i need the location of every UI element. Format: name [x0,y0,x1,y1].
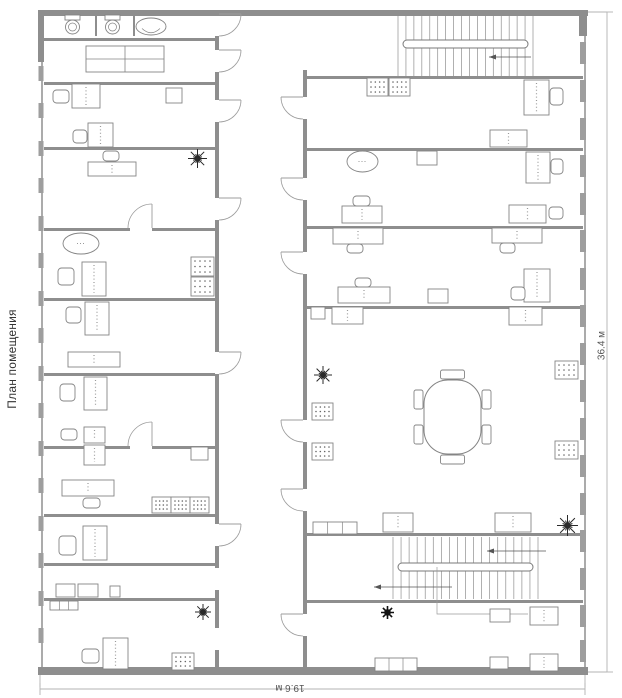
desk [490,130,527,147]
conference-chair [414,390,423,409]
door-swing [219,198,241,220]
armchair-dot [375,86,377,88]
armchair-dot [401,86,403,88]
armchair-dot [397,81,399,83]
armchair-dot [315,451,317,453]
armchair-dot [320,455,322,457]
armchair-dot [204,266,206,268]
wall [303,119,307,178]
window [580,80,586,102]
armchair-dot [379,86,381,88]
wall [215,36,219,50]
window [39,216,44,231]
armchair-dot [573,369,575,371]
conference-chair [482,425,491,444]
door [128,204,152,228]
window [580,343,586,365]
armchair-dot [328,411,330,413]
cabinet [490,609,510,622]
armchair-dot [204,280,206,282]
armchair-dot [324,406,326,408]
window [580,418,586,440]
armchair-dot [197,504,199,506]
plan-title: План помещения [5,294,19,424]
armchair-dot [178,504,180,506]
desk [509,205,546,223]
window [580,268,586,290]
armchair-dot [193,508,195,510]
wall [152,228,215,231]
armchair-dot [180,665,182,667]
wall [38,10,44,62]
window [39,291,44,306]
armchair-dot [320,446,322,448]
door [281,489,303,511]
wall [215,650,219,668]
armchair-dot [201,504,203,506]
stair-direction-arrow-icon [374,585,381,590]
toilet-bowl [106,20,120,34]
armchair-dot [155,500,157,502]
armchair-dot [199,291,201,293]
wall [44,514,215,517]
sideboard [375,658,417,671]
armchair [171,497,190,513]
armchair-dot [166,504,168,506]
armchair-dot [320,411,322,413]
armchair-dot [201,508,203,510]
armchair [367,78,388,96]
door [281,252,303,274]
armchair-dot [558,454,560,456]
door [281,97,303,119]
window [39,591,44,606]
door-swing [281,489,303,511]
armchair-dot [189,661,191,663]
window [39,328,44,343]
armchair-dot [193,500,195,502]
armchair-dot [199,266,201,268]
window [580,640,586,662]
window [580,193,586,215]
desk [492,228,542,243]
armchair-dot [182,504,184,506]
window [39,516,44,531]
chair [511,287,525,300]
armchair-dot [573,374,575,376]
wall [303,442,307,489]
armchair-dot [405,81,407,83]
armchair [312,403,333,420]
armchair-dot [370,81,372,83]
window [580,118,586,140]
window [580,455,586,477]
armchair-dot [189,665,191,667]
armchair-dot [163,500,165,502]
conference-chair [441,370,465,379]
armchair-dot [324,411,326,413]
armchair-dot [209,260,211,262]
armchair-dot [194,271,196,273]
wall [44,147,215,150]
wall [44,298,215,301]
door-swing [219,352,241,374]
wall [44,228,130,231]
armchair-dot [573,364,575,366]
armchair-dot [401,91,403,93]
armchair-dot [558,369,560,371]
armchair-dot [199,286,201,288]
door-swing [128,204,152,228]
armchair-dot [174,504,176,506]
desk [495,513,531,532]
wall [303,636,307,668]
wall [215,374,219,524]
armchair-dot [568,369,570,371]
armchair-dot [180,656,182,658]
armchair-dot [397,91,399,93]
armchair-dot [199,260,201,262]
armchair-dot [379,81,381,83]
wall [215,72,219,100]
armchair-dot [166,508,168,510]
plant-icon [557,515,578,536]
cabinet [490,657,508,669]
chair [53,90,69,103]
door-swing [281,97,303,119]
desk [103,638,128,669]
armchair-dot [204,260,206,262]
desk [84,427,105,443]
desk [509,307,542,325]
window [580,230,586,252]
armchair-dot [328,455,330,457]
armchair-dot [185,656,187,658]
armchair-dot [159,500,161,502]
window [39,478,44,493]
stair-direction-arrow-icon [489,55,496,60]
armchair-dot [315,415,317,417]
armchair-dot [166,500,168,502]
armchair-dot [558,449,560,451]
conference-chair [441,455,465,464]
armchair-dot [178,508,180,510]
wall [44,373,215,376]
armchair-dot [182,500,184,502]
plant-icon [188,149,207,168]
wall [215,590,219,628]
cabinet [166,88,182,103]
desk [524,269,550,302]
cabinet [191,447,208,460]
desk [84,377,107,410]
window [580,530,586,552]
armchair-dot [558,374,560,376]
desk [333,228,383,244]
armchair-dot [163,504,165,506]
leader-line [437,567,528,614]
armchair-dot [204,508,206,510]
armchair-dot [204,500,206,502]
window [39,253,44,268]
floor-plan-canvas: План помещения 36.4 м 19.6 м [0,0,622,698]
armchair-dot [405,91,407,93]
stair-handrail [398,563,533,571]
door-swing [128,422,152,446]
armchair-dot [185,500,187,502]
armchair-dot [563,444,565,446]
wall [95,12,97,36]
chair [550,88,563,105]
armchair-dot [401,81,403,83]
wall [307,148,583,151]
armchair-dot [568,454,570,456]
armchair-dot [320,451,322,453]
door-swing [219,50,241,72]
armchair-dot [392,81,394,83]
chair [66,307,81,323]
desk [526,152,550,183]
cabinet [110,586,120,597]
wall [303,70,307,97]
door [219,198,241,220]
door-swing [219,14,241,36]
desk [332,307,363,324]
sideboard [50,601,78,610]
chair [549,207,563,219]
cabinet [417,151,437,165]
wall [303,200,307,252]
armchair-dot [573,449,575,451]
armchair-dot [197,508,199,510]
desk [85,302,109,335]
door [219,14,241,36]
armchair-dot [204,504,206,506]
armchair-dot [320,406,322,408]
armchair-dot [209,271,211,273]
armchair-dot [204,291,206,293]
chair [551,159,563,174]
armchair-dot [209,291,211,293]
door-swing [281,420,303,442]
desk [530,654,558,671]
armchair-dot [185,504,187,506]
armchair-dot [383,81,385,83]
wall [215,220,219,352]
armchair-dot [324,415,326,417]
wall [579,10,587,36]
window [39,366,44,381]
door [281,614,303,636]
armchair-dot [383,91,385,93]
plant-icon [381,606,394,619]
chair [82,649,99,663]
armchair-dot [392,91,394,93]
chair [73,130,87,143]
wall [215,546,219,568]
armchair-dot [175,665,177,667]
armchair-dot [199,280,201,282]
toilet-tank [65,15,80,20]
armchair-dot [189,656,191,658]
armchair-dot [397,86,399,88]
armchair [389,78,410,96]
wall [44,563,215,566]
door [219,100,241,122]
armchair-dot [155,504,157,506]
armchair-dot [315,455,317,457]
armchair-dot [193,504,195,506]
window [39,553,44,568]
wall [38,10,588,16]
armchair-dot [155,508,157,510]
armchair-dot [328,446,330,448]
armchair-dot [324,455,326,457]
armchair-dot [568,449,570,451]
door [128,422,152,446]
window [39,103,44,118]
desk [530,607,558,625]
window [39,441,44,456]
cabinet [56,584,75,597]
armchair-dot [558,444,560,446]
cabinet [78,584,98,597]
door-swing [281,178,303,200]
armchair-dot [568,364,570,366]
armchair-dot [175,656,177,658]
armchair-dot [375,91,377,93]
window [39,66,44,81]
armchair-dot [563,454,565,456]
toilet-bowl [66,20,80,34]
armchair-dot [209,286,211,288]
window [39,628,44,643]
chair [83,498,100,508]
conference-chair [482,390,491,409]
window [580,305,586,327]
armchair-dot [174,508,176,510]
armchair-dot [194,280,196,282]
armchair-dot [174,500,176,502]
armchair-dot [315,411,317,413]
toilet-tank [105,15,120,20]
armchair-dot [375,81,377,83]
staircase [398,16,533,76]
armchair-dot [204,286,206,288]
armchair-dot [563,364,565,366]
window [580,568,586,590]
armchair-dot [383,86,385,88]
armchair-dot [159,504,161,506]
door [219,50,241,72]
desk [338,287,390,303]
armchair [312,443,333,460]
armchair-dot [328,406,330,408]
cabinet [428,289,448,303]
armchair [152,497,171,513]
armchair-dot [201,500,203,502]
armchair-dot [315,406,317,408]
wall [307,600,583,603]
height-dimension-label: 36.4 м [597,321,608,371]
window [580,493,586,515]
armchair-dot [573,444,575,446]
window [580,155,586,177]
armchair-dot [568,374,570,376]
armchair-dot [194,291,196,293]
plant-icon [314,366,332,384]
armchair-dot [182,508,184,510]
door [219,524,241,546]
armchair-dot [328,451,330,453]
desk [62,480,114,496]
armchair-dot [324,451,326,453]
conference-table [424,380,481,454]
armchair-dot [197,500,199,502]
armchair-dot [175,661,177,663]
armchair-dot [370,86,372,88]
floor-plan-svg [0,0,622,698]
chair [353,196,370,206]
armchair-dot [163,508,165,510]
plant-icon [195,604,211,620]
window [580,42,586,64]
armchair-dot [185,508,187,510]
door-swing [219,100,241,122]
armchair-dot [194,286,196,288]
chair [61,429,77,440]
armchair-dot [568,444,570,446]
armchair-dot [563,449,565,451]
armchair-dot [328,415,330,417]
desk [342,206,382,223]
width-dimension-label: 19.6 м [265,682,315,693]
armchair-dot [209,280,211,282]
armchair-dot [558,364,560,366]
door-swing [281,252,303,274]
armchair-dot [392,86,394,88]
door-swing [281,614,303,636]
armchair [190,497,209,513]
armchair-dot [194,260,196,262]
armchair-dot [209,266,211,268]
desk [383,513,413,532]
conference-chair [414,425,423,444]
armchair-dot [180,661,182,663]
wall [303,511,307,614]
door [219,352,241,374]
armchair-dot [185,665,187,667]
door [281,178,303,200]
armchair-dot [320,415,322,417]
wall [303,76,583,79]
wall [303,274,307,420]
wall [215,122,219,198]
sideboard [313,522,357,534]
armchair-dot [159,508,161,510]
stair-handrail [403,40,528,48]
window [580,605,586,627]
armchair-dot [185,661,187,663]
door [281,420,303,442]
window [39,403,44,418]
chair [347,244,363,253]
chair [58,268,74,285]
chair [60,384,75,401]
armchair-dot [199,271,201,273]
wall [44,598,215,601]
armchair-dot [178,500,180,502]
